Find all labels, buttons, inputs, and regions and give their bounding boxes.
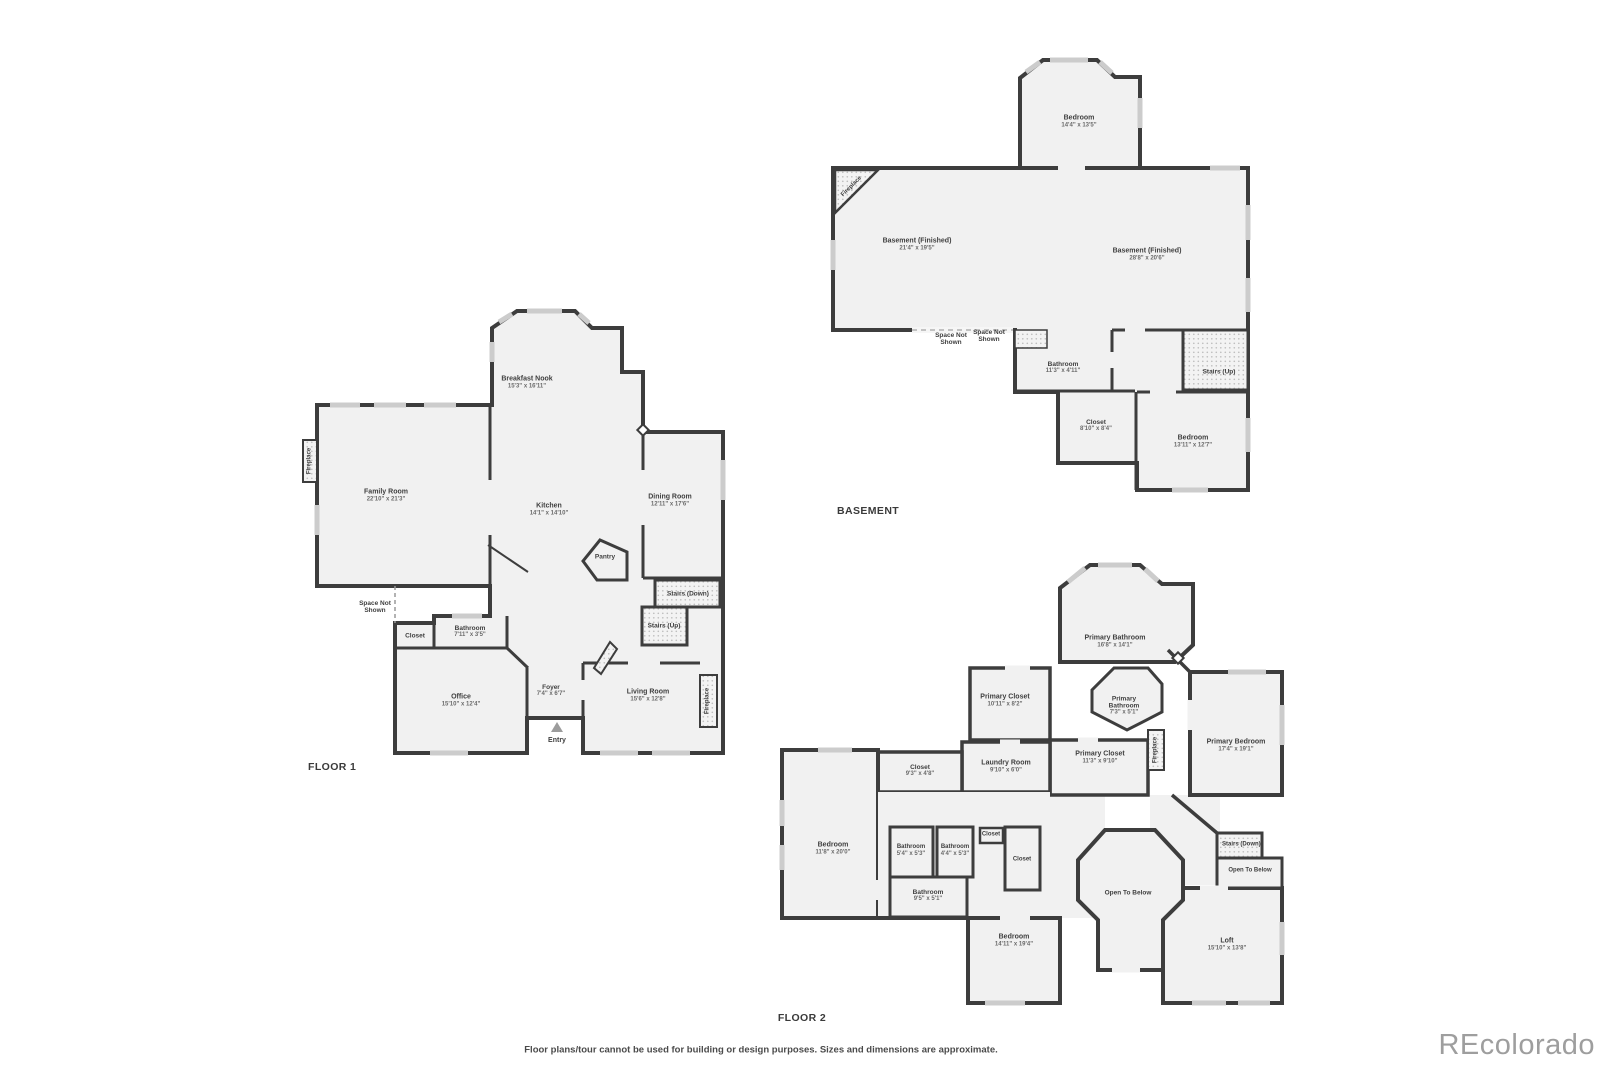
floor1-stairs-down-area — [655, 580, 720, 607]
floorplan-drawing — [0, 0, 1600, 1066]
entry-arrow-icon — [551, 722, 563, 732]
floor1-plan — [303, 311, 723, 753]
basement-plan — [833, 60, 1248, 490]
basement-stairs-up-area — [1183, 330, 1248, 390]
basement-bedroom-bay — [1020, 60, 1140, 168]
floor2-primary-bathroom-bay — [1060, 565, 1193, 662]
floor2-primary-bedroom-room — [1190, 672, 1282, 795]
floor1-title: FLOOR 1 — [308, 761, 356, 773]
floor2-loft-room — [1163, 888, 1282, 1003]
floorplan-sheet: Breakfast Nook 15'3" x 16'11" Family Roo… — [0, 0, 1600, 1066]
floor2-plan — [782, 565, 1282, 1003]
floor2-fireplace — [1148, 730, 1164, 770]
floor1-fireplace-right — [700, 675, 717, 727]
disclaimer-text: Floor plans/tour cannot be used for buil… — [524, 1045, 998, 1056]
floor2-title: FLOOR 2 — [778, 1012, 826, 1024]
basement-title: BASEMENT — [837, 505, 899, 517]
floor1-fireplace-left — [303, 440, 317, 482]
floor1-stairs-up-area — [642, 607, 687, 645]
recolorado-watermark: REcolorado — [1438, 1029, 1595, 1062]
floor2-stairs-down-area — [1217, 833, 1262, 858]
